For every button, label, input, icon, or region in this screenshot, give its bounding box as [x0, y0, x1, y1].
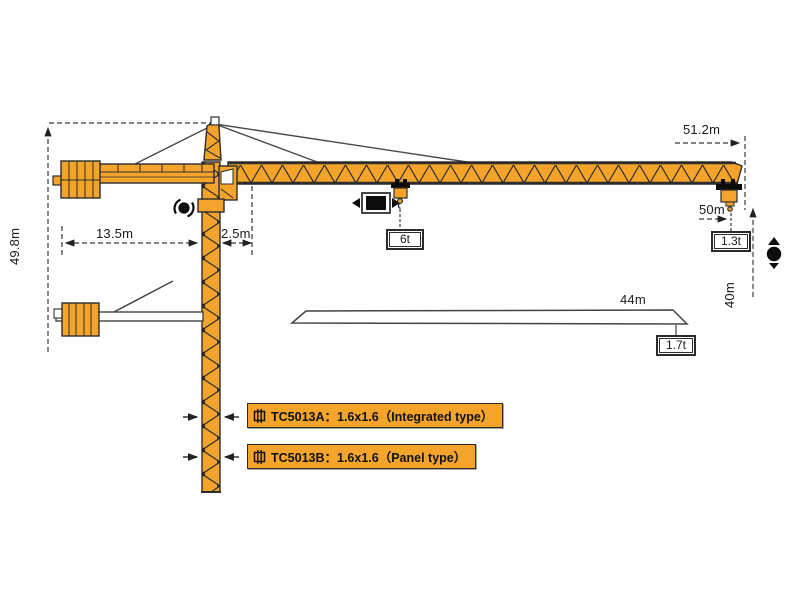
model-a-text: TC5013A：1.6x1.6（Integrated type） — [271, 406, 493, 425]
mast-section-icon — [253, 449, 266, 465]
hook-icon — [398, 199, 403, 204]
dim-hook-radius: 50m — [699, 202, 725, 217]
trolley-travel-icon — [352, 193, 400, 213]
crane-drawing — [0, 0, 800, 600]
load-tag-44m: 1.7t — [656, 335, 696, 356]
model-label-a: TC5013A：1.6x1.6（Integrated type） — [247, 403, 503, 428]
mast-section-icon — [253, 408, 266, 424]
slewing-unit — [198, 199, 224, 212]
dim-mid-radius: 44m — [620, 292, 646, 307]
dim-counterjib-radius: 13.5m — [96, 226, 133, 241]
tie-rod-right-2 — [215, 124, 487, 165]
dim-total-height: 49.8m — [7, 228, 22, 265]
load-tag-max: 6t — [386, 229, 424, 250]
tie-rod-right-1 — [215, 124, 328, 166]
main-jib — [228, 162, 742, 184]
crane-diagram: 49.8m 13.5m 2.5m 51.2m 50m 40m 44m 6t 1.… — [0, 0, 800, 600]
apex-cap — [211, 117, 219, 125]
load-max-value: 6t — [389, 232, 421, 247]
dim-tower-offset: 2.5m — [221, 226, 251, 241]
model-b-text: TC5013B：1.6x1.6（Panel type） — [271, 447, 466, 466]
dim-max-radius: 51.2m — [683, 122, 720, 137]
counter-jib — [97, 164, 214, 183]
tie-rods — [135, 124, 487, 166]
rotation-icon — [175, 200, 194, 217]
erection-tie — [112, 281, 173, 313]
load-44m-value: 1.7t — [659, 338, 693, 353]
tie-rod-left — [135, 124, 215, 164]
load-tip-value: 1.3t — [714, 234, 748, 249]
hook-icon — [728, 207, 732, 211]
erection-counterweight — [54, 281, 203, 336]
operator-cab — [219, 166, 237, 200]
tower-head — [204, 117, 221, 160]
dim-hook-height: 40m — [722, 282, 737, 308]
hoist-icon — [767, 237, 781, 269]
load-curve-44m — [292, 310, 687, 324]
load-tag-tip: 1.3t — [711, 231, 751, 252]
model-label-b: TC5013B：1.6x1.6（Panel type） — [247, 444, 476, 469]
counterweight — [53, 161, 100, 198]
